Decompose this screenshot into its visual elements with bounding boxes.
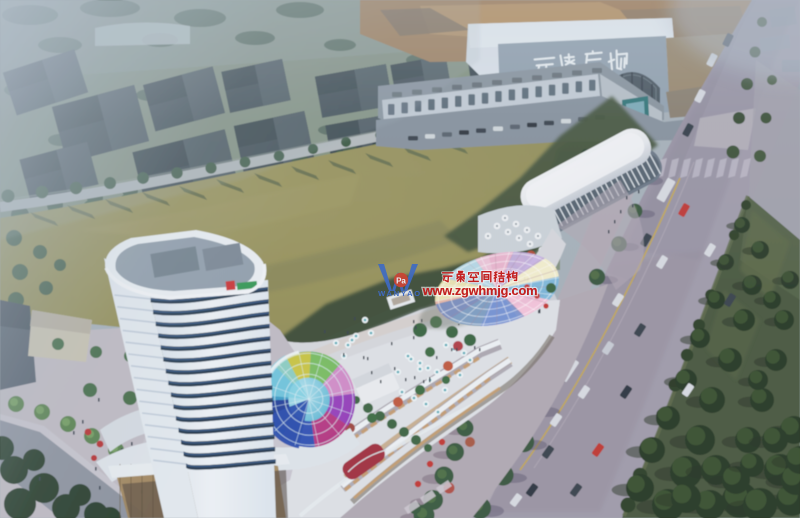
svg-text:Pa: Pa [396,277,406,286]
svg-text:www.zgwhmjg.com: www.zgwhmjg.com [422,283,538,298]
svg-text:WANYAO: WANYAO [378,289,422,298]
